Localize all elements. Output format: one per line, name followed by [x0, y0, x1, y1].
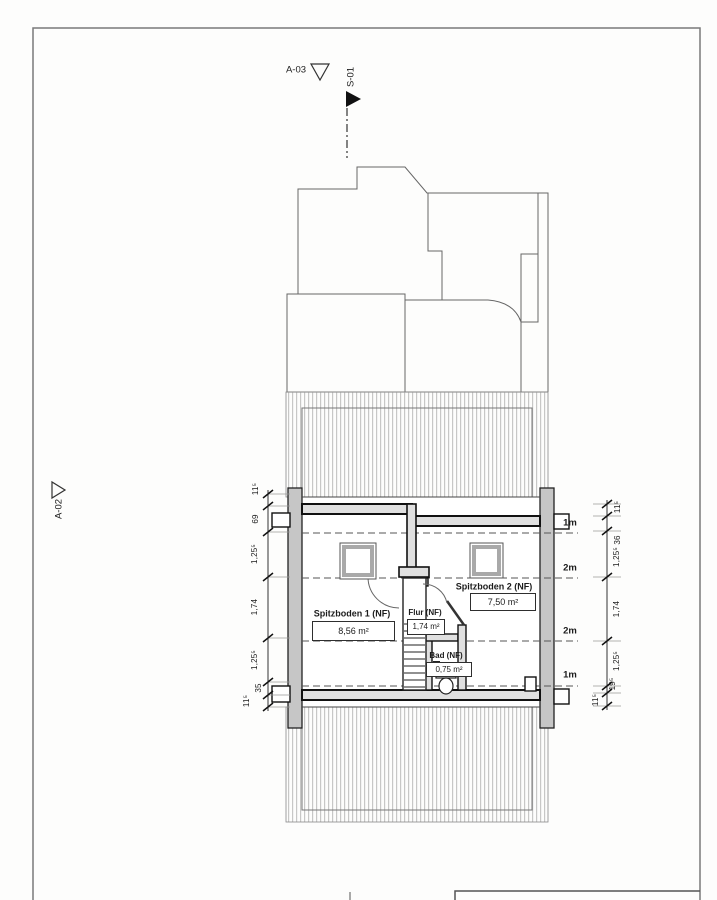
dim-right-5: 19⁵ — [609, 678, 617, 691]
dim-left-6: 11⁵ — [243, 695, 251, 707]
dim-right-4: 1,25⁵ — [613, 651, 621, 671]
height-label-1m-bottom: 1m — [563, 670, 577, 680]
dim-left-1: 69 — [252, 514, 260, 523]
marker-a02-label: A-02 — [54, 499, 64, 519]
room-name-spitzboden2: Spitzboden 2 (NF) — [456, 583, 533, 592]
dim-left-4: 1,25⁵ — [251, 650, 259, 670]
room-name-spitzboden1: Spitzboden 1 (NF) — [314, 610, 391, 619]
skylight-right — [470, 543, 503, 578]
dim-right-3: 1,74 — [613, 601, 621, 617]
dim-right-6: 11⁵ — [592, 694, 600, 706]
title-block-frame — [350, 891, 700, 900]
marker-a03-label: A-03 — [286, 65, 306, 75]
marker-a02-triangle — [52, 482, 65, 498]
area-box-spitzboden1: 8,56 m² — [312, 621, 395, 641]
floor-plan-linework — [0, 0, 717, 900]
dim-left-0: 11⁵ — [252, 483, 260, 495]
room-name-bad: Bad (NF) — [429, 652, 462, 660]
skylight-left — [340, 543, 376, 579]
section-line-s01 — [346, 91, 361, 158]
area-box-spitzboden2: 7,50 m² — [470, 593, 536, 611]
height-label-2m-bottom: 2m — [563, 626, 577, 636]
upper-building-outline — [287, 167, 548, 392]
dim-right-2: 1,25⁵ — [613, 547, 621, 567]
height-label-2m-top: 2m — [563, 563, 577, 573]
drawing-sheet: A-03 S-01 A-02 Spitzboden 1 (NF) Spitzbo… — [0, 0, 717, 900]
dim-right-0: 11⁵ — [614, 501, 622, 513]
marker-a03-triangle — [311, 64, 329, 80]
area-box-bad: 0,75 m² — [426, 662, 472, 677]
dim-left-2: 1,25⁵ — [251, 544, 259, 564]
dim-right-1: 36 — [614, 535, 622, 544]
room-name-flur: Flur (NF) — [408, 609, 441, 617]
dim-left-5: 35 — [255, 683, 263, 692]
height-label-1m-top: 1m — [563, 518, 577, 528]
marker-s01-label: S-01 — [346, 67, 356, 87]
area-box-flur: 1,74 m² — [407, 619, 445, 635]
dim-left-3: 1,74 — [251, 599, 259, 615]
